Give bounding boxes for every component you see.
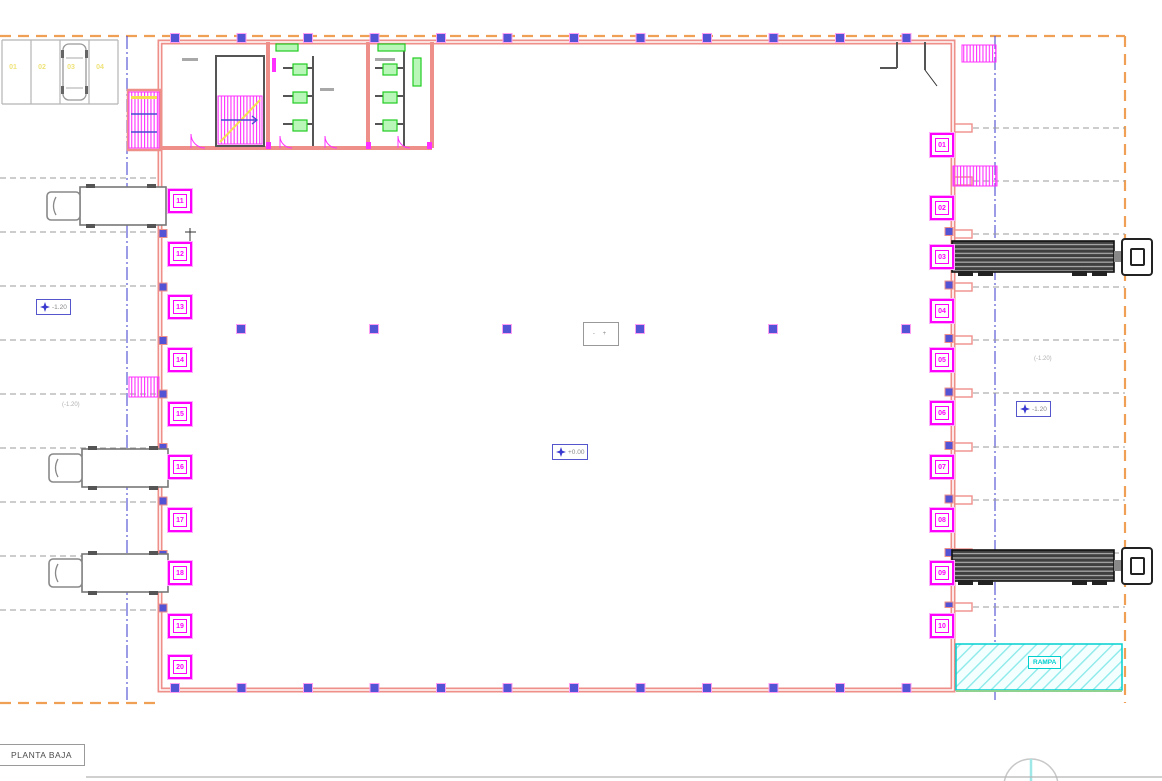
parking-stall-number: 03 (62, 64, 80, 71)
dock-door-08: 08 (930, 508, 954, 532)
level-note-right: (-1.20) (1034, 356, 1052, 362)
level-marker-center: +0.00 (552, 444, 588, 460)
dock-number: 08 (935, 513, 949, 527)
sanitary-fixtures (276, 44, 421, 131)
dock-door-10: 10 (930, 614, 954, 638)
north-arrow-icon (1004, 759, 1058, 781)
dock-number: 04 (935, 304, 949, 318)
door-swing-arcs (191, 134, 968, 688)
door-frame-marks (266, 58, 432, 149)
level-value: -1.20 (52, 304, 67, 311)
dock-door-15: 15 (168, 402, 192, 426)
dock-number: 20 (173, 660, 187, 674)
office-partition-walls (216, 42, 925, 146)
parking-stall-number: 04 (91, 64, 109, 71)
dock-number: 12 (173, 247, 187, 261)
dock-number: 17 (173, 513, 187, 527)
dock-number: 02 (935, 201, 949, 215)
dock-number: 09 (935, 566, 949, 580)
level-marker-left: -1.20 (36, 299, 71, 315)
level-value: -1.20 (1032, 406, 1047, 413)
dock-number: 13 (173, 300, 187, 314)
dock-number: 14 (173, 353, 187, 367)
level-value: +0.00 (568, 449, 584, 456)
parking-stalls (2, 40, 118, 104)
dock-door-06: 06 (930, 401, 954, 425)
parking-stall-number: 02 (33, 64, 51, 71)
dock-number: 18 (173, 566, 187, 580)
level-star-icon (40, 302, 50, 312)
dock-door-17: 17 (168, 508, 192, 532)
stairs-hatch (129, 45, 997, 397)
dock-door-04: 04 (930, 299, 954, 323)
level-marker-right: -1.20 (1016, 401, 1051, 417)
dock-door-14: 14 (168, 348, 192, 372)
truck-left-1 (47, 184, 166, 228)
dock-number: 15 (173, 407, 187, 421)
level-star-icon (556, 447, 566, 457)
dock-door-05: 05 (930, 348, 954, 372)
dock-number: 19 (173, 619, 187, 633)
dock-number: 11 (173, 194, 187, 208)
dock-door-19: 19 (168, 614, 192, 638)
floor-plan-canvas: 11 12 13 14 15 16 17 18 19 20 01 02 03 0… (0, 0, 1162, 781)
ramp-label: RAMPA (1028, 656, 1061, 669)
parking-stall-number: 01 (4, 64, 22, 71)
dock-door-12: 12 (168, 242, 192, 266)
dock-door-18: 18 (168, 561, 192, 585)
grid-tag-box: - + (583, 322, 619, 346)
truck-right-1 (952, 239, 1152, 276)
dock-number: 16 (173, 460, 187, 474)
dock-door-11: 11 (168, 189, 192, 213)
dock-door-16: 16 (168, 455, 192, 479)
dock-door-13: 13 (168, 295, 192, 319)
room-label-text (182, 58, 395, 91)
dock-number: 03 (935, 250, 949, 264)
dock-door-03: 03 (930, 245, 954, 269)
truck-left-2 (49, 446, 168, 490)
dock-door-20: 20 (168, 655, 192, 679)
structural-columns (163, 38, 949, 688)
truck-left-3 (49, 551, 168, 595)
truck-right-2 (952, 548, 1152, 585)
dock-door-01: 01 (930, 133, 954, 157)
dock-number: 05 (935, 353, 949, 367)
dock-number: 07 (935, 460, 949, 474)
dock-door-07: 07 (930, 455, 954, 479)
dock-number: 01 (935, 138, 949, 152)
drawing-title: PLANTA BAJA (0, 744, 85, 766)
dock-door-02: 02 (930, 196, 954, 220)
dock-stub-walls (953, 124, 972, 611)
dock-door-09: 09 (930, 561, 954, 585)
dock-number: 06 (935, 406, 949, 420)
level-note-left: (-1.20) (62, 402, 80, 408)
parked-car (61, 44, 88, 100)
dock-number: 10 (935, 619, 949, 633)
level-star-icon (1020, 404, 1030, 414)
